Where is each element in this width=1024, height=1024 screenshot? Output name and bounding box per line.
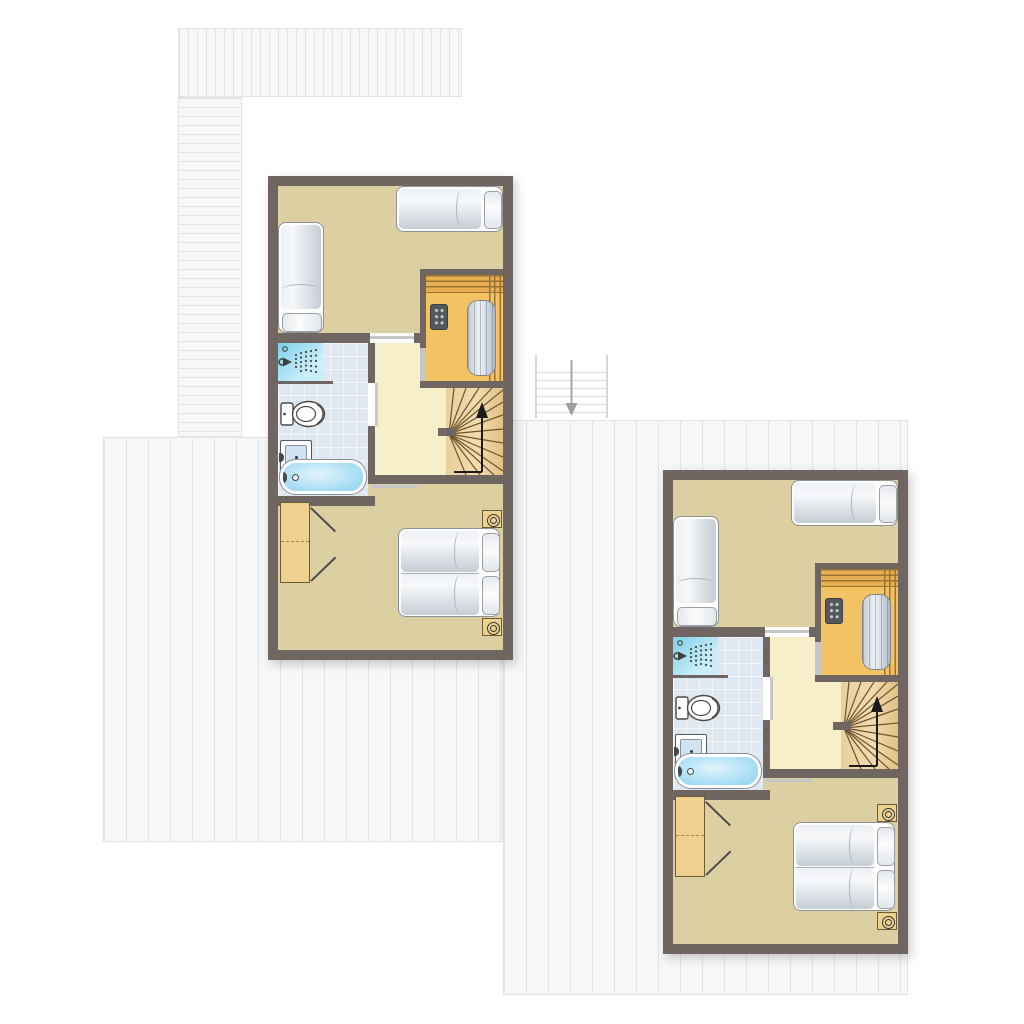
single-bed [278,222,324,333]
lamp-ring [882,808,895,821]
mattress [794,483,876,523]
pillow [677,607,717,626]
wardrobe-shelf [281,541,309,542]
tap [279,453,284,462]
sauna-stove-icon [825,598,843,624]
stair-stub-wall [833,722,851,730]
tap [676,765,682,778]
floor-plan [0,0,1024,1024]
sauna-floor [426,275,503,381]
hallway-landing [375,388,446,475]
drain [292,474,299,481]
hallway-landing [770,682,841,769]
wall [763,720,770,769]
lamp-ring [487,514,500,527]
door-opening [763,677,770,720]
hallway [770,637,815,682]
pillow [484,191,502,229]
wall [414,333,426,343]
pillow [879,485,897,523]
unit-right [663,470,908,954]
mattress [796,868,874,909]
mattress [796,825,874,866]
mattress [401,574,479,615]
shower-icon [278,343,323,383]
double-bed [793,822,895,911]
mattress [676,519,716,603]
door-leaf [370,336,414,339]
wall [278,333,370,343]
bedside-lamp-icon [877,804,897,822]
sauna-bench [467,300,496,376]
blanket-fold [677,578,715,589]
door-leaf [770,677,773,720]
pillow [877,870,895,909]
pillow [482,533,500,572]
wardrobe-shelf [676,835,704,836]
wall [809,627,821,637]
lamp-ring [882,916,895,929]
sauna-stones [434,308,444,326]
sauna-bench [862,594,891,670]
door-leaf [766,779,812,782]
mattress [401,531,479,572]
door-opening [368,383,375,426]
door-leaf [375,383,378,426]
wardrobe [675,796,705,877]
single-bed [396,186,503,232]
drain [687,768,694,775]
single-bed [791,480,898,526]
toilet-icon [280,400,326,428]
bed-divider [796,867,874,868]
pillow [877,827,895,866]
bathtub-icon [280,460,366,494]
sauna [815,563,898,682]
wall [368,426,375,475]
blanket-fold [849,826,860,865]
sauna [420,269,503,388]
lamp-ring [487,622,500,635]
door-leaf [371,485,417,488]
stair-stub-wall [438,428,456,436]
blanket-fold [456,190,467,228]
wall [368,475,503,484]
blanket-fold [849,869,860,908]
wardrobe [280,502,310,583]
double-bed [398,528,500,617]
bedside-lamp-icon [877,912,897,930]
toilet-icon [675,694,721,722]
blanket-fold [454,575,465,614]
mattress [281,225,321,309]
shower-screen [278,381,333,384]
bed-divider [401,573,479,574]
wall [763,769,898,778]
apartment-unit [268,176,513,660]
sauna-door-leaf [815,642,821,675]
shower-screen [673,675,728,678]
wall [763,637,770,677]
wall [673,627,765,637]
drain [690,750,693,753]
down-arrow-icon [535,355,608,418]
mattress [399,189,481,229]
unit-left [268,176,513,660]
single-bed [673,516,719,627]
bedside-lamp-icon [482,618,502,636]
decking-walkway-left [178,97,242,437]
shower-icon [673,637,718,677]
hallway [375,343,420,388]
wall [368,343,375,383]
apartment-unit [663,470,908,954]
bathtub-icon [675,754,761,788]
sauna-floor [821,569,898,675]
pillow [482,576,500,615]
blanket-fold [282,284,320,295]
bedside-lamp-icon [482,510,502,528]
pillow [282,313,322,332]
tap [281,471,287,484]
tap [674,747,679,756]
blanket-fold [851,484,862,522]
drain [295,456,298,459]
blanket-fold [454,532,465,571]
door-leaf [765,630,809,633]
exterior-steps [535,355,608,418]
decking-walkway-top [178,28,462,97]
sauna-door-leaf [420,348,426,381]
sauna-stones [829,602,839,620]
sauna-stove-icon [430,304,448,330]
